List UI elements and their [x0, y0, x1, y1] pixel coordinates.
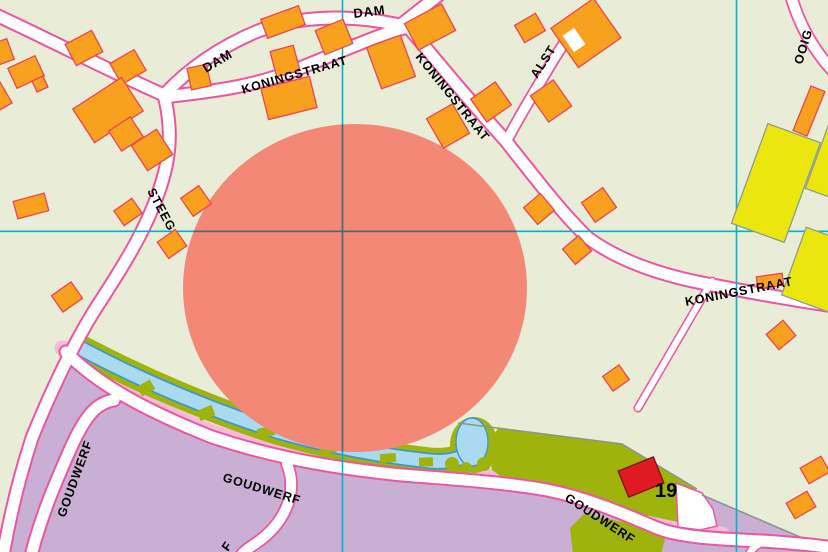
highlight-circle [183, 124, 527, 452]
map-canvas[interactable]: DAMDAMKONINGSTRAATKONINGSTRAATALSTKONING… [0, 0, 828, 552]
bank-notch [380, 453, 397, 463]
bank-notch [419, 457, 433, 466]
bank-bump [445, 457, 459, 471]
bank-bump [460, 462, 472, 474]
house-number-label: 19 [655, 480, 677, 502]
bank-bump [477, 457, 491, 471]
map-svg[interactable]: DAMDAMKONINGSTRAATKONINGSTRAATALSTKONING… [0, 0, 828, 552]
